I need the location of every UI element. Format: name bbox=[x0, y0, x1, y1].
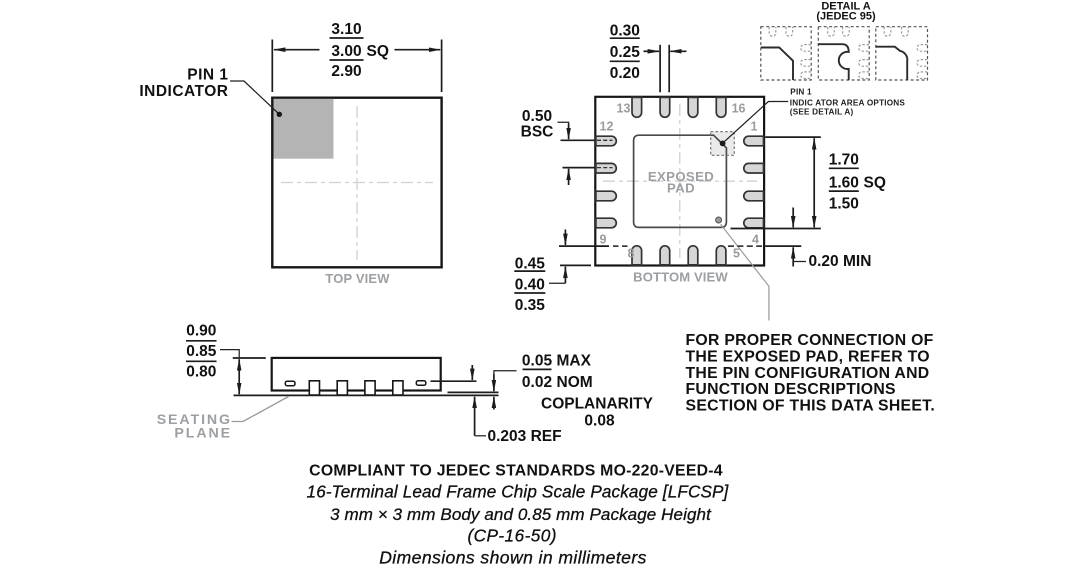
svg-text:0.02: 0.02 bbox=[522, 374, 552, 391]
svg-text:PIN 1: PIN 1 bbox=[187, 67, 228, 84]
svg-text:0.40: 0.40 bbox=[515, 276, 545, 293]
svg-text:3.00: 3.00 bbox=[331, 43, 361, 60]
svg-text:3.10: 3.10 bbox=[331, 21, 361, 38]
svg-text:13: 13 bbox=[617, 102, 631, 116]
svg-text:SECTION OF THIS DATA SHEET.: SECTION OF THIS DATA SHEET. bbox=[686, 397, 936, 414]
svg-text:3 mm × 3 mm Body and 0.85 mm P: 3 mm × 3 mm Body and 0.85 mm Package Hei… bbox=[330, 505, 712, 524]
svg-text:0.90: 0.90 bbox=[186, 322, 216, 339]
svg-text:1.60: 1.60 bbox=[829, 174, 859, 191]
svg-text:0.05: 0.05 bbox=[522, 353, 553, 370]
svg-text:TOP VIEW: TOP VIEW bbox=[325, 271, 390, 286]
svg-text:1.70: 1.70 bbox=[829, 152, 859, 169]
svg-text:12: 12 bbox=[600, 120, 614, 134]
svg-text:16-Terminal Lead Frame Chip Sc: 16-Terminal Lead Frame Chip Scale Packag… bbox=[307, 482, 730, 501]
svg-text:5: 5 bbox=[733, 247, 740, 261]
svg-text:THE PIN CONFIGURATION AND: THE PIN CONFIGURATION AND bbox=[686, 365, 930, 382]
svg-text:COMPLIANT TO JEDEC STANDARDS M: COMPLIANT TO JEDEC STANDARDS MO-220-VEED… bbox=[309, 462, 723, 479]
svg-text:0.25: 0.25 bbox=[610, 44, 641, 61]
svg-text:0.08: 0.08 bbox=[584, 413, 615, 430]
svg-text:PAD: PAD bbox=[667, 180, 695, 195]
svg-text:0.80: 0.80 bbox=[186, 364, 216, 381]
svg-text:4: 4 bbox=[752, 233, 759, 247]
svg-text:SQ: SQ bbox=[367, 43, 389, 60]
svg-text:FUNCTION DESCRIPTIONS: FUNCTION DESCRIPTIONS bbox=[686, 381, 896, 398]
svg-text:(CP-16-50): (CP-16-50) bbox=[467, 526, 557, 546]
svg-text:2.90: 2.90 bbox=[331, 63, 361, 80]
svg-text:0.35: 0.35 bbox=[515, 297, 546, 314]
svg-text:SQ: SQ bbox=[864, 174, 886, 191]
svg-text:BSC: BSC bbox=[521, 124, 554, 141]
svg-text:PLANE: PLANE bbox=[174, 426, 232, 442]
svg-text:1.50: 1.50 bbox=[829, 195, 859, 212]
svg-text:MAX: MAX bbox=[557, 353, 592, 370]
svg-text:PIN 1: PIN 1 bbox=[790, 88, 812, 97]
svg-text:8: 8 bbox=[628, 247, 635, 261]
svg-text:0.85: 0.85 bbox=[186, 343, 217, 360]
svg-text:1: 1 bbox=[751, 120, 758, 134]
svg-text:0.30: 0.30 bbox=[610, 22, 640, 39]
svg-text:INDIC ATOR AREA OPTIONS: INDIC ATOR AREA OPTIONS bbox=[790, 98, 906, 107]
svg-text:(JEDEC 95): (JEDEC 95) bbox=[816, 10, 876, 22]
svg-text:FOR PROPER CONNECTION OF: FOR PROPER CONNECTION OF bbox=[686, 332, 934, 349]
svg-text:(SEE DETAIL A): (SEE DETAIL A) bbox=[790, 108, 854, 117]
svg-text:BOTTOM VIEW: BOTTOM VIEW bbox=[633, 270, 728, 285]
svg-text:0.203 REF: 0.203 REF bbox=[488, 428, 562, 445]
svg-text:0.50: 0.50 bbox=[522, 108, 552, 125]
svg-text:NOM: NOM bbox=[557, 374, 593, 391]
svg-text:THE EXPOSED PAD, REFER TO: THE EXPOSED PAD, REFER TO bbox=[686, 349, 930, 366]
svg-text:Dimensions shown in millimeter: Dimensions shown in millimeters bbox=[379, 548, 647, 568]
svg-text:COPLANARITY: COPLANARITY bbox=[541, 396, 654, 413]
svg-text:INDICATOR: INDICATOR bbox=[139, 83, 228, 100]
svg-text:0.20: 0.20 bbox=[610, 65, 640, 82]
svg-text:0.20 MIN: 0.20 MIN bbox=[809, 253, 872, 270]
svg-text:16: 16 bbox=[732, 102, 746, 116]
svg-text:0.45: 0.45 bbox=[515, 255, 546, 272]
svg-text:9: 9 bbox=[600, 233, 607, 247]
